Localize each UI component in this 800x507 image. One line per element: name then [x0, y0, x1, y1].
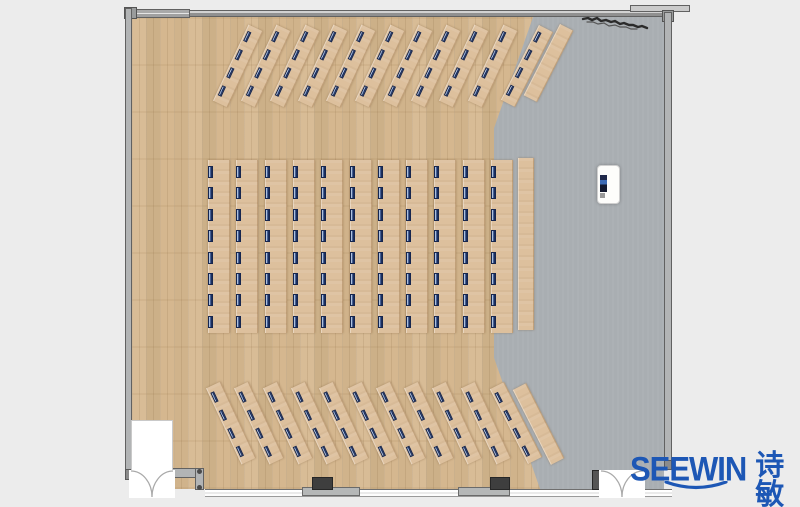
chair-mark [299, 31, 308, 43]
chair-mark [378, 294, 383, 306]
chair-mark [433, 446, 442, 458]
chair-mark [340, 427, 349, 439]
chair-mark [350, 209, 355, 221]
desk-strip [208, 160, 230, 333]
chair-mark [320, 446, 329, 458]
scribble-mark [581, 15, 651, 30]
chair-mark [472, 85, 481, 97]
chair-mark [406, 209, 411, 221]
chair-mark [406, 316, 411, 328]
chair-mark [462, 446, 471, 458]
chair-mark [491, 273, 496, 285]
chair-mark [415, 85, 424, 97]
chair-mark [321, 187, 326, 199]
chair-mark [321, 316, 326, 328]
desk-strip [491, 160, 513, 333]
chair-mark [445, 409, 454, 421]
chair-mark [302, 85, 311, 97]
chair-mark [265, 166, 270, 178]
chair-mark [434, 252, 439, 264]
chair-mark [227, 427, 236, 439]
chair-mark [274, 85, 283, 97]
seewin-logo: SEEWIN 诗敏 [630, 452, 800, 507]
chair-mark [208, 209, 213, 221]
chair-mark [208, 252, 213, 264]
chair-mark [295, 391, 304, 403]
chair-mark [311, 67, 320, 79]
chair-mark [350, 294, 355, 306]
chair-mark [463, 294, 468, 306]
chair-mark [265, 273, 270, 285]
chair-mark [406, 294, 411, 306]
podium-screen [600, 175, 607, 192]
chair-mark [293, 294, 298, 306]
chair-mark [293, 187, 298, 199]
chair-mark [406, 252, 411, 264]
chair-mark [463, 273, 468, 285]
chair-mark [432, 49, 441, 61]
chair-mark [235, 446, 244, 458]
chair-mark [236, 187, 241, 199]
desk-strip [321, 160, 343, 333]
chair-mark [441, 31, 450, 43]
chair-mark [425, 427, 434, 439]
wall-column-2 [490, 477, 510, 490]
desk-strip [378, 160, 400, 333]
floor-plan-image: SEEWIN 诗敏 [0, 0, 800, 507]
chair-mark [226, 67, 235, 79]
chair-mark [376, 49, 385, 61]
chair-mark [463, 166, 468, 178]
wall-top-left-segment [136, 9, 190, 18]
chair-mark [247, 409, 256, 421]
logo-swoosh [663, 481, 729, 491]
chair-mark [406, 230, 411, 242]
chair-mark [406, 273, 411, 285]
chair-mark [236, 166, 241, 178]
chair-mark [434, 209, 439, 221]
chair-mark [350, 252, 355, 264]
chair-mark [265, 230, 270, 242]
chair-mark [378, 166, 383, 178]
chair-mark [293, 209, 298, 221]
chair-mark [293, 166, 298, 178]
chair-mark [463, 230, 468, 242]
chair-mark [378, 187, 383, 199]
chair-mark [265, 316, 270, 328]
chair-mark [408, 391, 417, 403]
chair-mark [303, 409, 312, 421]
chair-mark [255, 427, 264, 439]
chair-mark [491, 187, 496, 199]
desk-strip [236, 160, 258, 333]
chair-mark [452, 67, 461, 79]
chair-mark [491, 316, 496, 328]
chair-mark [246, 85, 255, 97]
desk-strip [293, 160, 315, 333]
chair-mark [208, 294, 213, 306]
chair-mark [491, 294, 496, 306]
chair-mark [406, 166, 411, 178]
chair-mark [321, 252, 326, 264]
chair-mark [321, 294, 326, 306]
chair-mark [434, 316, 439, 328]
chair-mark [254, 67, 263, 79]
wall-joint-dot-2 [197, 485, 202, 490]
chair-mark [359, 85, 368, 97]
chair-mark [491, 209, 496, 221]
chair-mark [236, 230, 241, 242]
chair-mark [282, 67, 291, 79]
chair-mark [323, 391, 332, 403]
chair-mark [384, 31, 393, 43]
chair-mark [350, 187, 355, 199]
chair-mark [491, 230, 496, 242]
chair-mark [236, 252, 241, 264]
wall-joint-dot-1 [197, 469, 202, 474]
chair-mark [293, 252, 298, 264]
chair-mark [208, 273, 213, 285]
chair-mark [331, 85, 340, 97]
chair-mark [378, 230, 383, 242]
chair-mark [234, 49, 243, 61]
chair-mark [210, 391, 219, 403]
chair-mark [453, 427, 462, 439]
chair-mark [236, 273, 241, 285]
chair-mark [236, 294, 241, 306]
chair-mark [243, 31, 252, 43]
chair-mark [293, 316, 298, 328]
chair-mark [350, 230, 355, 242]
chair-mark [236, 209, 241, 221]
chair-mark [469, 31, 478, 43]
desk-strip [406, 160, 428, 333]
chair-mark [264, 446, 273, 458]
wall-top-outer-step [630, 5, 690, 12]
chair-mark [424, 67, 433, 79]
chair-mark [312, 427, 321, 439]
podium-tray [600, 193, 605, 198]
chair-mark [434, 294, 439, 306]
chair-mark [378, 252, 383, 264]
wall-left [125, 8, 132, 480]
chair-mark [378, 273, 383, 285]
desk-strip [350, 160, 372, 333]
chair-mark [523, 49, 532, 61]
chair-mark [271, 31, 280, 43]
chair-mark [461, 49, 470, 61]
chair-mark [350, 316, 355, 328]
chair-mark [367, 67, 376, 79]
chair-mark [332, 409, 341, 421]
chair-mark [497, 31, 506, 43]
chair-mark [533, 31, 542, 43]
chair-mark [412, 31, 421, 43]
wall-column-1 [312, 477, 333, 490]
chair-mark [463, 316, 468, 328]
chair-mark [505, 84, 514, 96]
chair-mark [293, 273, 298, 285]
chair-mark [434, 230, 439, 242]
chair-mark [491, 252, 496, 264]
chair-mark [434, 273, 439, 285]
chair-mark [321, 230, 326, 242]
chair-mark [463, 252, 468, 264]
chair-mark [463, 209, 468, 221]
chair-mark [328, 31, 337, 43]
chair-mark [339, 67, 348, 79]
chair-mark [265, 187, 270, 199]
chair-mark [404, 49, 413, 61]
chair-mark [238, 391, 247, 403]
chair-mark [444, 85, 453, 97]
chair-mark [356, 31, 365, 43]
chair-mark [434, 166, 439, 178]
chair-mark [434, 187, 439, 199]
chair-mark [321, 166, 326, 178]
chair-mark [378, 209, 383, 221]
chair-mark [489, 49, 498, 61]
chair-mark [263, 49, 272, 61]
chair-mark [265, 209, 270, 221]
desk-strip [463, 160, 485, 333]
chair-mark [406, 187, 411, 199]
chair-mark [347, 49, 356, 61]
chair-mark [350, 273, 355, 285]
desk-strip [265, 160, 287, 333]
chair-mark [321, 273, 326, 285]
chair-mark [463, 187, 468, 199]
chair-mark [218, 409, 227, 421]
chair-mark [436, 391, 445, 403]
chair-mark [208, 166, 213, 178]
chair-mark [293, 230, 298, 242]
chair-mark [350, 166, 355, 178]
wall-right [664, 12, 672, 470]
chair-mark [236, 316, 241, 328]
chair-mark [208, 316, 213, 328]
chair-mark [319, 49, 328, 61]
chair-mark [208, 230, 213, 242]
chair-mark [348, 446, 357, 458]
chair-mark [387, 85, 396, 97]
chair-mark [480, 67, 489, 79]
podium [597, 165, 620, 204]
chair-mark [321, 209, 326, 221]
chair-mark [265, 252, 270, 264]
chair-mark [291, 49, 300, 61]
logo-text-cjk: 诗敏 [755, 452, 800, 507]
entrance-mat-bottom-left [131, 420, 173, 471]
chair-mark [217, 85, 226, 97]
chair-mark [514, 67, 523, 79]
chair-mark [491, 166, 496, 178]
door-bottom-left [129, 470, 175, 499]
chair-mark [396, 67, 405, 79]
chair-mark [378, 316, 383, 328]
chair-mark [265, 294, 270, 306]
chair-mark [208, 187, 213, 199]
side-table [518, 158, 534, 330]
desk-strip [434, 160, 456, 333]
chair-mark [416, 409, 425, 421]
